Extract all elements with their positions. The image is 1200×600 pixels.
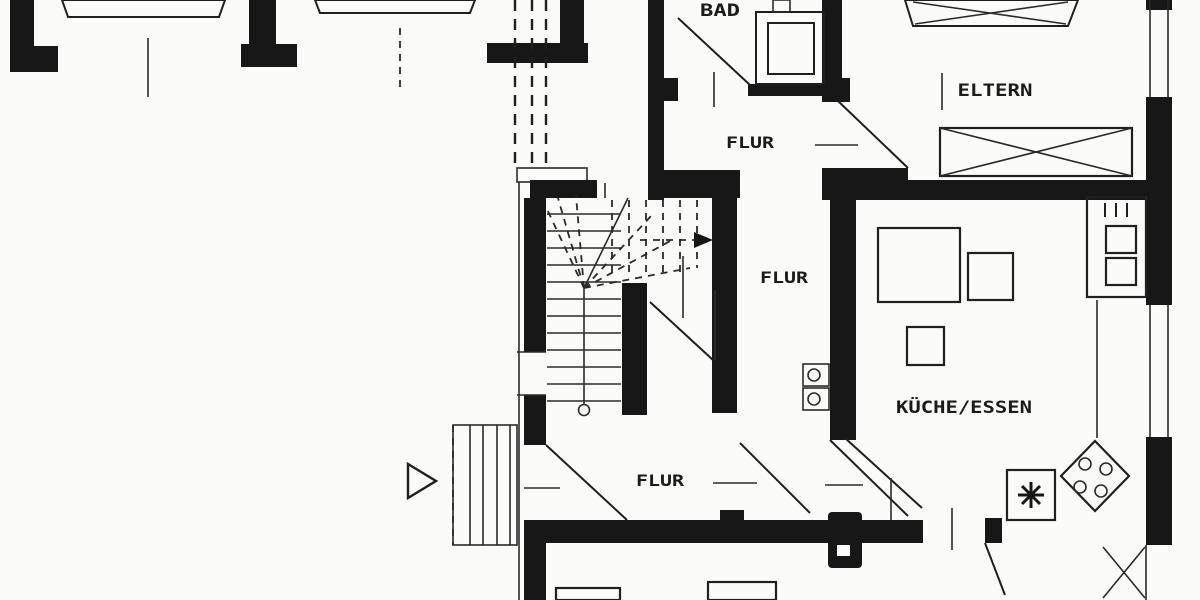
projection-dashed-lines: [515, 0, 546, 163]
winder-fan-lines: [545, 196, 690, 288]
entrance-door-swing-icon: [524, 445, 627, 520]
label-bad: BAD: [700, 1, 740, 21]
bed-icon: [905, 0, 1078, 26]
hall-walls: [524, 170, 1005, 600]
sink-icon: [1007, 470, 1055, 520]
furniture-partial: [708, 582, 776, 600]
shower-icon: [756, 0, 824, 84]
window-icon: [1150, 0, 1168, 97]
kitchen-table-icon: [878, 228, 1013, 365]
oven-tower-icon: [1087, 197, 1146, 297]
window-x-icon: [1103, 545, 1146, 600]
balcony-pillars: [10, 0, 588, 72]
stove-icon: [1061, 441, 1129, 511]
wardrobe-icon: [940, 128, 1132, 176]
floor-plan-drawing: BAD FLUR ELTERN FLUR KÜCHE/ESSEN FLUR: [0, 0, 1200, 600]
label-flur-mid: FLUR: [760, 268, 808, 287]
room-eltern: [815, 0, 1172, 305]
label-kueche: KÜCHE/ESSEN: [896, 396, 1032, 418]
entrance-arrow-icon: [408, 464, 436, 498]
label-flur-top: FLUR: [726, 133, 774, 152]
chimney-icon: [828, 512, 862, 568]
room-kueche: [803, 197, 1172, 545]
upper-flight-treads: [612, 200, 697, 272]
bad-door-swing-icon: [678, 18, 750, 107]
window-icon: [1150, 305, 1168, 437]
label-flur-bottom: FLUR: [636, 471, 684, 490]
label-eltern: ELTERN: [958, 81, 1033, 101]
floor-plan-page: BAD FLUR ELTERN FLUR KÜCHE/ESSEN FLUR: [0, 0, 1200, 600]
entrance-steps-icon: [453, 425, 517, 545]
furniture-partial: [556, 588, 620, 600]
radiator-icon: [803, 364, 829, 410]
stair-direction-arrow-icon: [694, 232, 713, 248]
